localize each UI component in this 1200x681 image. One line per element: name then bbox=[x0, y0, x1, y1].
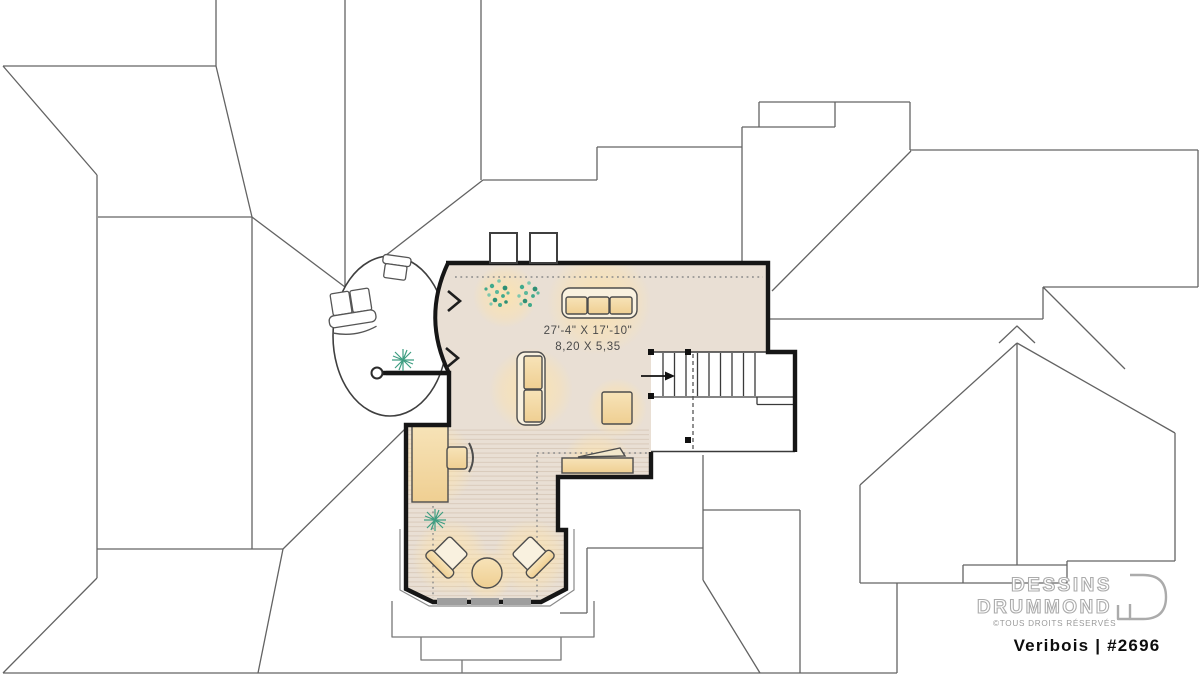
copyright-text: ©TOUS DROITS RÉSERVÉS bbox=[993, 618, 1116, 628]
drummond-logo-icon bbox=[1118, 575, 1166, 619]
chimney-left bbox=[490, 233, 517, 263]
plant-starburst-turret bbox=[392, 349, 414, 371]
chimneys bbox=[490, 233, 557, 263]
ottoman bbox=[602, 392, 632, 424]
plan-title: Veribois | #2696 bbox=[1014, 636, 1161, 655]
turret bbox=[333, 256, 447, 416]
roof-center-gable bbox=[252, 0, 483, 287]
floor-plan-canvas: 27'-4" X 17'-10" 8,20 X 5,35 DESSINS DRU… bbox=[0, 0, 1200, 681]
brand-wordmark-line1: DESSINS bbox=[1011, 575, 1112, 596]
stairwell-opening bbox=[651, 352, 795, 452]
brand-wordmark-line2: DRUMMOND bbox=[977, 597, 1112, 618]
round-table bbox=[472, 558, 502, 588]
roof-lower-center bbox=[560, 455, 800, 673]
porch-steps-outline bbox=[392, 601, 594, 673]
window-sill bbox=[437, 598, 467, 605]
window-sill bbox=[503, 598, 531, 605]
room-dimension-imperial: 27'-4" X 17'-10" bbox=[544, 325, 633, 337]
couch bbox=[517, 352, 545, 425]
desk bbox=[412, 425, 448, 502]
bay-windows bbox=[437, 598, 531, 605]
branding-block: DESSINS DRUMMOND ©TOUS DROITS RÉSERVÉS V… bbox=[977, 575, 1166, 655]
window-sill bbox=[471, 598, 499, 605]
room-dimension-metric: 8,20 X 5,35 bbox=[555, 341, 620, 353]
chimney-right bbox=[530, 233, 557, 263]
plant-starburst-wing bbox=[424, 509, 446, 531]
floor-plan-page: 27'-4" X 17'-10" 8,20 X 5,35 DESSINS DRU… bbox=[0, 0, 1200, 681]
turret-outline bbox=[333, 256, 447, 416]
sofa bbox=[562, 288, 637, 318]
